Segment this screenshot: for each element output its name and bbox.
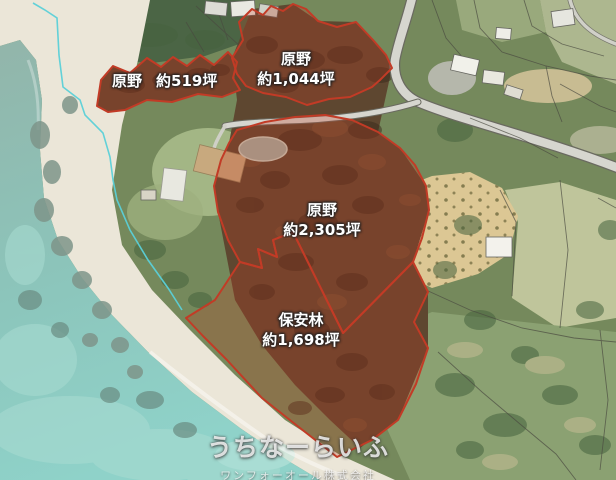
aerial-photo — [0, 0, 616, 480]
aerial-map-image[interactable]: 原野 約519坪 原野 約1,044坪 原野 約2,305坪 保安林 約1,69… — [0, 0, 616, 480]
